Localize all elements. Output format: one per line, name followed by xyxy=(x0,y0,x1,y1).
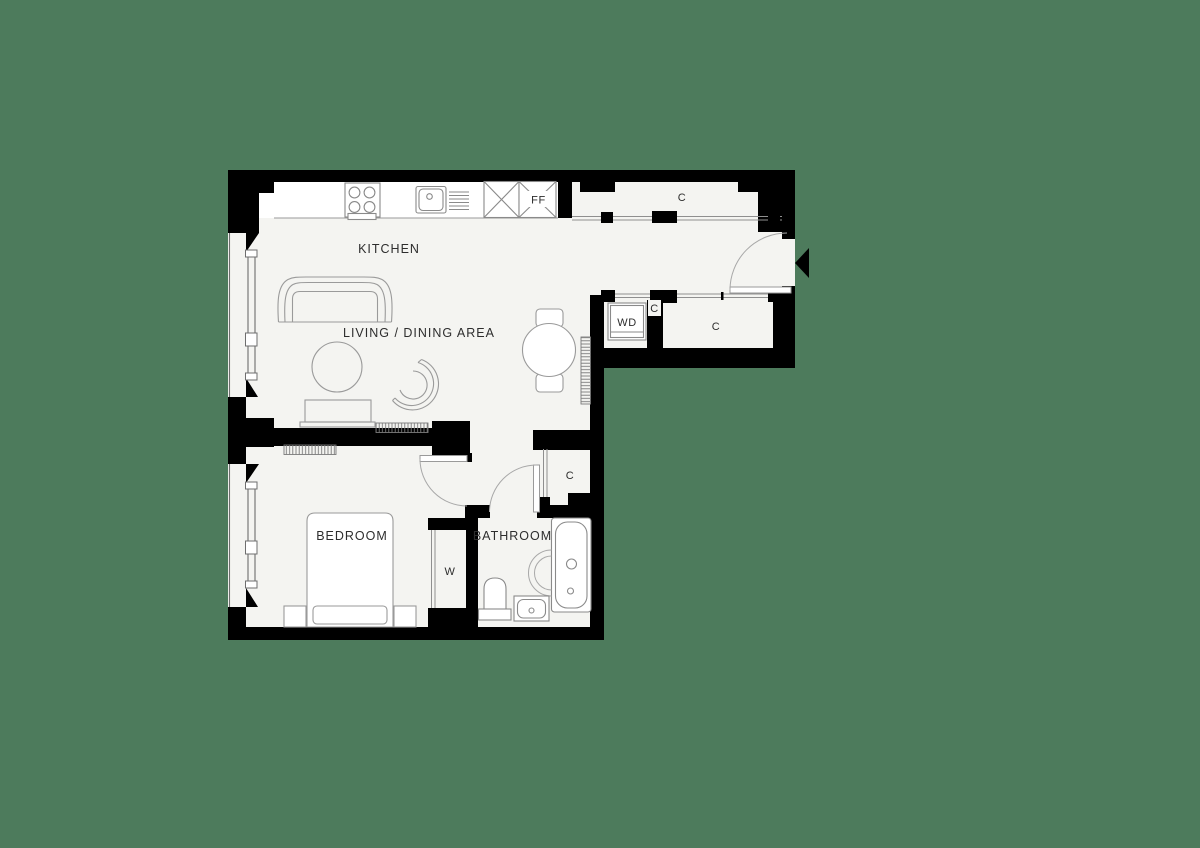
living-dining-label: LIVING / DINING AREA xyxy=(343,326,495,340)
nightstand xyxy=(394,606,416,627)
nightstand xyxy=(284,606,306,627)
hall-closet-label: C xyxy=(678,192,687,204)
bedroom-label: BEDROOM xyxy=(316,529,388,543)
kitchen-label: KITCHEN xyxy=(358,242,420,256)
basin xyxy=(514,596,549,621)
floor-plan: FF xyxy=(0,0,1200,848)
fridge-freezer-label: FF xyxy=(531,195,546,207)
bathroom-closet-label: C xyxy=(566,470,575,482)
dining-table xyxy=(523,324,576,377)
fridge-freezer-unit: FF xyxy=(519,182,556,218)
washer-dryer-label: WD xyxy=(617,317,637,329)
bedroom-radiator xyxy=(284,445,336,455)
utility-closet-label: C xyxy=(650,303,659,315)
wardrobe-label: W xyxy=(445,566,456,578)
tall-unit xyxy=(484,182,519,218)
living-radiator xyxy=(376,423,428,433)
pillow xyxy=(313,606,387,624)
bathroom-label: BATHROOM xyxy=(473,529,552,543)
floor-plan-canvas: FF xyxy=(0,0,1200,848)
hob xyxy=(345,183,380,220)
entry-closet-label: C xyxy=(712,321,721,333)
dining-radiator xyxy=(581,337,591,404)
bathtub xyxy=(552,518,592,612)
